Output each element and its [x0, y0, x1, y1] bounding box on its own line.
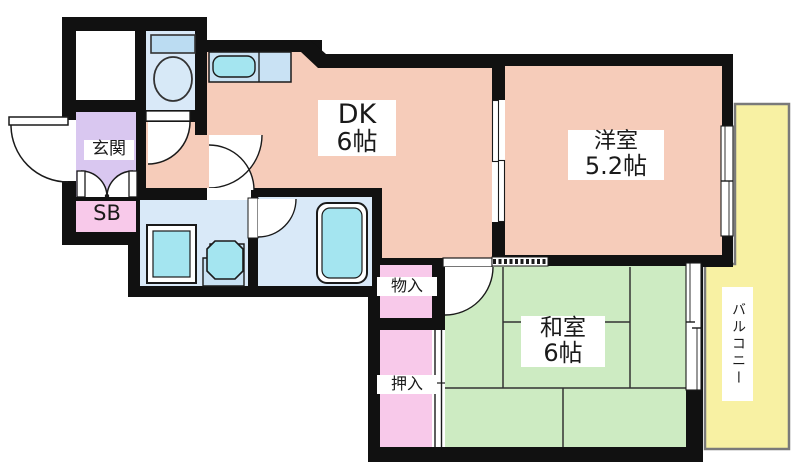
toilet-door-leaf: [146, 111, 190, 121]
western-window: [721, 126, 733, 236]
room-label-dk-size: 6帖: [320, 129, 394, 155]
room-storage-top-left: [76, 31, 135, 100]
front-door-leaf: [9, 117, 68, 125]
washroom-door-opening: [207, 188, 251, 200]
room-label-balcony: バルコニー: [722, 287, 753, 401]
wash-basin-icon: [203, 241, 244, 286]
japanese-sliding-hatch: [492, 257, 548, 266]
floor-plan: DK 6帖 洋室 5.2帖 和室 6帖 玄関 SB 物入 押入 バルコニー: [0, 0, 800, 473]
room-label-closet: 押入: [377, 375, 437, 394]
floor-plan-drawing: [0, 0, 800, 473]
room-label-entrance: 玄関: [84, 140, 134, 160]
front-door-opening: [62, 120, 76, 181]
room-label-japanese-size: 6帖: [523, 341, 603, 366]
room-label-western: 洋室 5.2帖: [568, 130, 664, 180]
room-label-western-name: 洋室: [570, 131, 662, 154]
japanese-window: [686, 263, 701, 390]
front-door-arc: [11, 125, 68, 182]
dk-western-sliding-door: [492, 100, 505, 222]
room-label-storage: 物入: [377, 277, 437, 296]
kitchen-counter: [209, 52, 291, 82]
room-label-dk-name: DK: [320, 101, 394, 129]
room-label-japanese-name: 和室: [523, 317, 603, 341]
room-label-dk: DK 6帖: [318, 100, 396, 156]
japanese-door-leaf: [443, 258, 492, 267]
washing-machine-icon: [147, 225, 196, 283]
hall-dk-opening: [195, 135, 207, 188]
room-label-japanese: 和室 6帖: [521, 316, 605, 367]
toilet-icon: [151, 35, 195, 101]
kitchen-sink-icon: [213, 56, 255, 77]
bathtub-icon: [317, 203, 367, 283]
room-label-shoebox: SB: [86, 203, 128, 225]
room-label-western-size: 5.2帖: [570, 154, 662, 179]
bathroom-door-opening: [248, 198, 258, 238]
